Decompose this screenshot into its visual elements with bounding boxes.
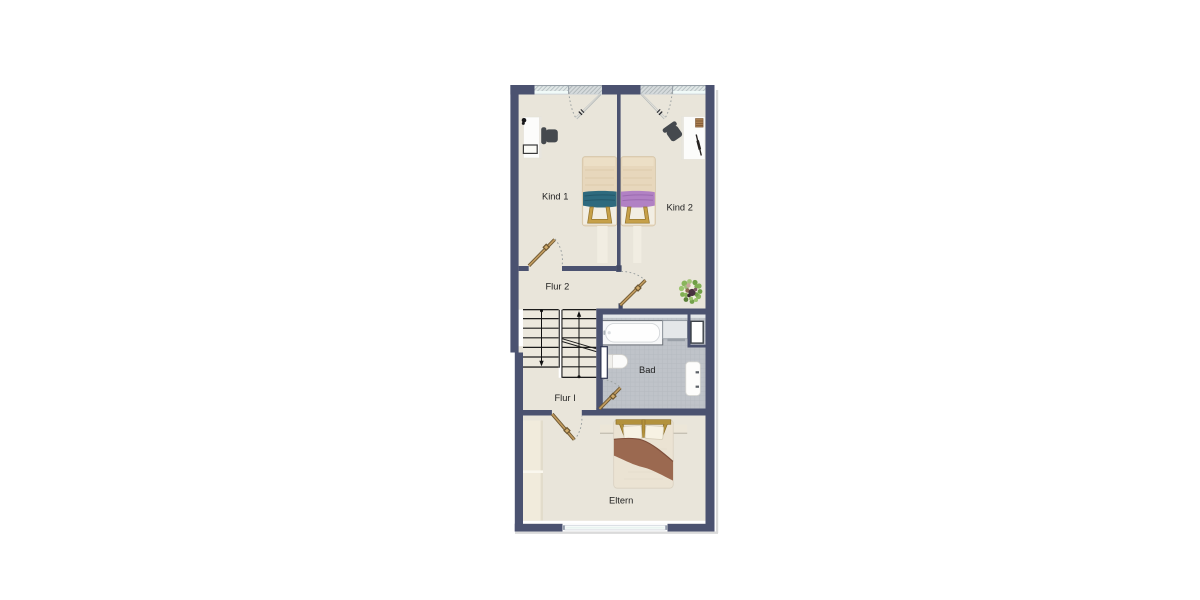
svg-text:Kind 1: Kind 1 xyxy=(542,192,568,202)
svg-text:Eltern: Eltern xyxy=(609,495,633,505)
svg-text:Kind 2: Kind 2 xyxy=(667,203,693,213)
svg-text:Flur 2: Flur 2 xyxy=(546,282,570,292)
svg-text:Flur I: Flur I xyxy=(555,393,576,403)
svg-text:Bad: Bad xyxy=(639,365,656,375)
